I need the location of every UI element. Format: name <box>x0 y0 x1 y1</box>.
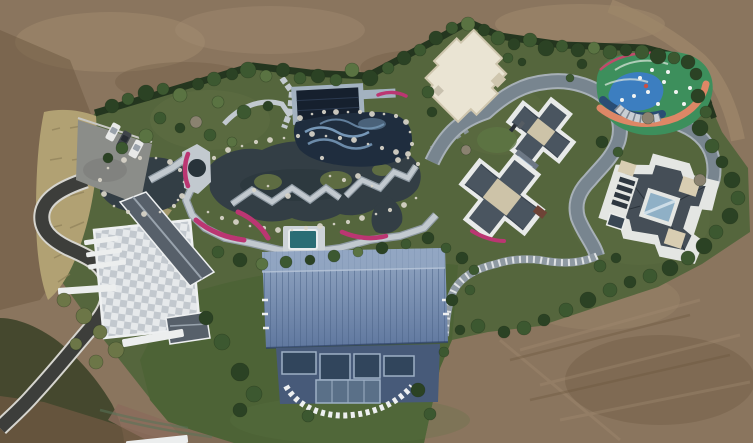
tree <box>694 174 706 186</box>
rock <box>267 137 273 143</box>
tree <box>237 105 251 119</box>
tree <box>345 63 359 77</box>
tree <box>603 45 617 59</box>
tree <box>461 17 475 31</box>
tree <box>577 59 587 69</box>
tree <box>246 386 262 402</box>
barn-skylight <box>354 354 380 378</box>
tree <box>668 52 680 64</box>
pond-island <box>254 174 282 190</box>
tree <box>471 319 485 333</box>
rock <box>347 111 350 114</box>
tree <box>108 342 124 358</box>
tree <box>635 45 649 59</box>
tree <box>571 43 585 57</box>
rock <box>267 185 270 188</box>
play-equipment-dot <box>682 102 686 106</box>
barn-skylight <box>282 352 316 374</box>
tree <box>260 70 272 82</box>
tree <box>566 74 574 82</box>
tree <box>57 293 71 307</box>
rock <box>383 113 386 116</box>
tree <box>538 314 550 326</box>
tree <box>681 251 695 265</box>
tree <box>190 116 202 128</box>
tree <box>503 53 513 63</box>
tree <box>429 31 443 45</box>
tree <box>138 85 154 101</box>
tree <box>662 260 678 276</box>
tree <box>411 383 425 397</box>
rock <box>401 202 407 208</box>
tree <box>517 321 531 335</box>
tree <box>596 136 608 148</box>
rock <box>325 135 328 138</box>
play-equipment-dot <box>632 94 636 98</box>
rock <box>415 197 418 200</box>
tree <box>231 363 249 381</box>
rock <box>359 215 365 221</box>
play-equipment-dot <box>650 68 654 72</box>
rock <box>178 168 182 172</box>
rock <box>113 205 116 208</box>
tree <box>175 123 185 133</box>
tree <box>422 86 434 98</box>
tree <box>302 410 314 422</box>
tree <box>441 243 451 253</box>
rock <box>338 136 342 140</box>
rock <box>285 193 291 199</box>
tree <box>508 38 520 50</box>
tree <box>212 96 224 108</box>
rock <box>380 146 384 150</box>
tree <box>700 106 712 118</box>
rock <box>358 110 362 114</box>
tree <box>456 252 468 264</box>
rock <box>283 137 286 140</box>
tree <box>580 292 596 308</box>
rock <box>241 145 244 148</box>
tree <box>722 208 738 224</box>
rock <box>395 157 401 163</box>
tree <box>446 22 458 34</box>
rock <box>304 226 308 230</box>
play-equipment-dot <box>656 102 660 106</box>
tree <box>233 403 247 417</box>
rock <box>342 178 346 182</box>
rock <box>107 167 110 170</box>
tree <box>465 285 475 295</box>
rock <box>409 131 412 134</box>
tree <box>401 239 411 249</box>
tree <box>603 283 617 297</box>
tree <box>709 225 723 239</box>
tree <box>469 265 479 275</box>
tree <box>376 242 388 254</box>
tree <box>491 31 505 45</box>
tree <box>240 62 256 78</box>
rock <box>333 109 339 115</box>
tree <box>588 42 600 54</box>
tree <box>362 70 378 86</box>
barn-house <box>262 248 449 404</box>
rock <box>393 149 399 155</box>
tree <box>692 120 708 136</box>
tree <box>263 101 273 111</box>
tree <box>305 255 315 265</box>
tree <box>226 68 238 80</box>
tree <box>422 232 434 244</box>
play-equipment-dot <box>666 70 670 74</box>
rock <box>320 156 324 160</box>
tree <box>424 408 436 420</box>
tree <box>556 40 568 52</box>
tree <box>276 63 290 77</box>
tree <box>414 44 426 56</box>
rock <box>101 191 107 197</box>
rock <box>233 219 239 225</box>
tree <box>214 334 230 350</box>
rock <box>275 227 281 233</box>
rock <box>249 225 252 228</box>
tree <box>705 139 719 153</box>
rock <box>367 143 370 146</box>
rock <box>329 175 332 178</box>
tree <box>76 308 92 324</box>
rock <box>138 156 142 160</box>
rock <box>291 229 294 232</box>
rock <box>252 188 256 192</box>
tree <box>103 153 113 163</box>
rock <box>388 208 392 212</box>
tree <box>89 355 103 369</box>
tree <box>523 33 537 47</box>
tree <box>233 253 247 267</box>
tree <box>461 145 471 155</box>
tree <box>559 303 573 317</box>
rock <box>322 110 326 114</box>
tree <box>157 83 169 95</box>
play-equipment-dot <box>646 90 650 94</box>
rock <box>375 213 378 216</box>
rock <box>177 199 180 202</box>
tree <box>116 142 128 154</box>
tree <box>256 258 268 270</box>
tree <box>154 112 166 124</box>
tree <box>594 260 606 272</box>
tree <box>620 44 632 56</box>
tree <box>212 246 224 258</box>
tree <box>192 78 204 90</box>
aerial-photo-stage <box>0 0 753 443</box>
tree <box>311 69 325 83</box>
rock <box>416 162 420 166</box>
rock <box>98 178 102 182</box>
tree <box>624 276 636 288</box>
rock <box>207 211 210 214</box>
rock <box>403 119 409 125</box>
rock <box>333 223 336 226</box>
rock <box>351 137 357 143</box>
tree <box>122 93 134 105</box>
tree <box>397 51 411 65</box>
tree <box>643 269 657 283</box>
rock <box>121 157 127 163</box>
rock <box>407 157 410 160</box>
tree <box>681 55 695 69</box>
tree <box>611 253 621 263</box>
tree <box>690 68 702 80</box>
tree <box>724 172 740 188</box>
tree <box>280 256 292 268</box>
rock <box>296 134 300 138</box>
barn-skylight <box>384 356 414 376</box>
pool-shallow <box>358 118 386 130</box>
tree <box>650 48 666 64</box>
rock <box>394 114 398 118</box>
rock <box>141 211 147 217</box>
tree <box>455 325 465 335</box>
rock <box>297 115 303 121</box>
tree <box>642 112 654 124</box>
tree <box>328 250 340 262</box>
spa-pool <box>289 230 317 249</box>
barn-skylight <box>320 354 350 380</box>
tree <box>207 72 221 86</box>
tree <box>330 74 342 86</box>
rock <box>155 157 158 160</box>
tree <box>731 191 745 205</box>
rock <box>311 113 314 116</box>
tree <box>696 238 712 254</box>
rock <box>254 140 258 144</box>
play-equipment-dot <box>674 90 678 94</box>
tree <box>439 347 449 357</box>
tree <box>199 311 213 325</box>
rock <box>410 142 414 146</box>
dirt-patch <box>175 6 365 54</box>
rock <box>309 131 315 137</box>
tree <box>382 62 394 74</box>
tree <box>173 88 187 102</box>
tree <box>70 338 82 350</box>
rock <box>405 151 411 157</box>
tree <box>613 147 623 157</box>
play-equipment-dot <box>620 98 624 102</box>
rock <box>371 185 374 188</box>
play-equipment-red <box>644 84 648 88</box>
rock <box>167 159 173 165</box>
deck-pool <box>188 159 206 177</box>
tree <box>691 89 705 103</box>
rock <box>126 210 130 214</box>
tree <box>538 40 554 56</box>
tree <box>478 24 490 36</box>
rock <box>179 193 185 199</box>
rock <box>369 111 375 117</box>
play-equipment-dot <box>638 76 642 80</box>
tree <box>93 325 107 339</box>
tree <box>105 99 119 113</box>
play-equipment-dot <box>688 86 692 90</box>
rock <box>220 216 224 220</box>
aerial-photo <box>0 0 753 443</box>
tree <box>498 326 510 338</box>
tree <box>294 72 306 84</box>
tree <box>227 137 237 147</box>
tree <box>353 247 363 257</box>
rock <box>355 173 361 179</box>
tree <box>204 129 216 141</box>
play-equipment-dot <box>662 80 666 84</box>
rock <box>212 156 216 160</box>
tree <box>446 294 458 306</box>
rock <box>225 147 231 153</box>
tree <box>716 156 728 168</box>
tree <box>427 107 437 117</box>
tree <box>139 129 153 143</box>
rock <box>159 211 162 214</box>
dirt-mound <box>565 335 753 425</box>
tree <box>518 58 526 66</box>
rock <box>346 220 350 224</box>
rock <box>317 223 323 229</box>
rock <box>172 204 176 208</box>
